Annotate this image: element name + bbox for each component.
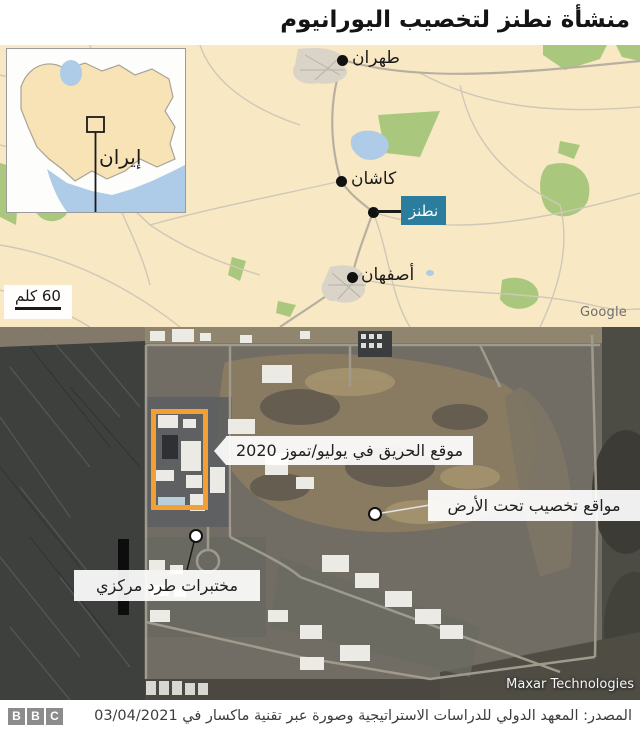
bbc-logo-letter: C — [46, 708, 63, 725]
infographic: منشأة نطنز لتخصيب اليورانيوم — [0, 0, 640, 732]
caspian-sea — [60, 60, 82, 86]
iran-outline-map — [7, 49, 185, 212]
footer: B B C المصدر: المعهد الدولي للدراسات الا… — [0, 700, 640, 732]
city-marker-dot — [368, 207, 379, 218]
city-label: كاشان — [351, 169, 396, 189]
mountains-left — [0, 327, 145, 700]
satellite-image[interactable]: موقع الحريق في يوليو/تموز 2020 مواقع تخص… — [0, 327, 640, 700]
underground-sites-label: مواقع تخصيب تحت الأرض — [428, 490, 640, 521]
city-marker-dot — [336, 176, 347, 187]
city-label: أصفهان — [361, 265, 414, 285]
bbc-logo: B B C — [8, 708, 63, 725]
country-label: إيران — [99, 145, 141, 169]
callout-arrow-left-icon — [214, 437, 226, 465]
city-marker-dot — [347, 272, 358, 283]
underground-marker-dot — [368, 507, 382, 521]
centrifuge-labs-label: مختبرات طرد مركزي — [74, 570, 260, 601]
natanz-highlight-label: نطنز — [401, 196, 446, 225]
source-text: المصدر: المعهد الدولي للدراسات الاستراتي… — [71, 708, 632, 724]
fire-site-highlight-box — [151, 409, 208, 510]
map-scale: 60 كلم — [4, 285, 72, 319]
locator-map[interactable]: إيران طهران كاشان أصفهان نطنز 60 كلم Goo… — [0, 45, 640, 327]
iran-inset-map: إيران — [6, 48, 186, 213]
fire-site-label: موقع الحريق في يوليو/تموز 2020 — [226, 436, 473, 465]
maxar-attribution: Maxar Technologies — [506, 677, 634, 692]
bbc-logo-letter: B — [8, 708, 25, 725]
scale-bar — [15, 307, 61, 310]
city-label: طهران — [352, 48, 400, 68]
fire-site-callout: موقع الحريق في يوليو/تموز 2020 — [214, 436, 473, 465]
google-attribution: Google — [580, 305, 627, 320]
natanz-leader-line — [376, 210, 403, 213]
grid-building — [358, 331, 392, 357]
city-marker-dot — [337, 55, 348, 66]
bbc-logo-letter: B — [27, 708, 44, 725]
centrifuge-marker-dot — [189, 529, 203, 543]
scale-label: 60 كلم — [12, 288, 64, 305]
page-title: منشأة نطنز لتخصيب اليورانيوم — [0, 0, 640, 45]
